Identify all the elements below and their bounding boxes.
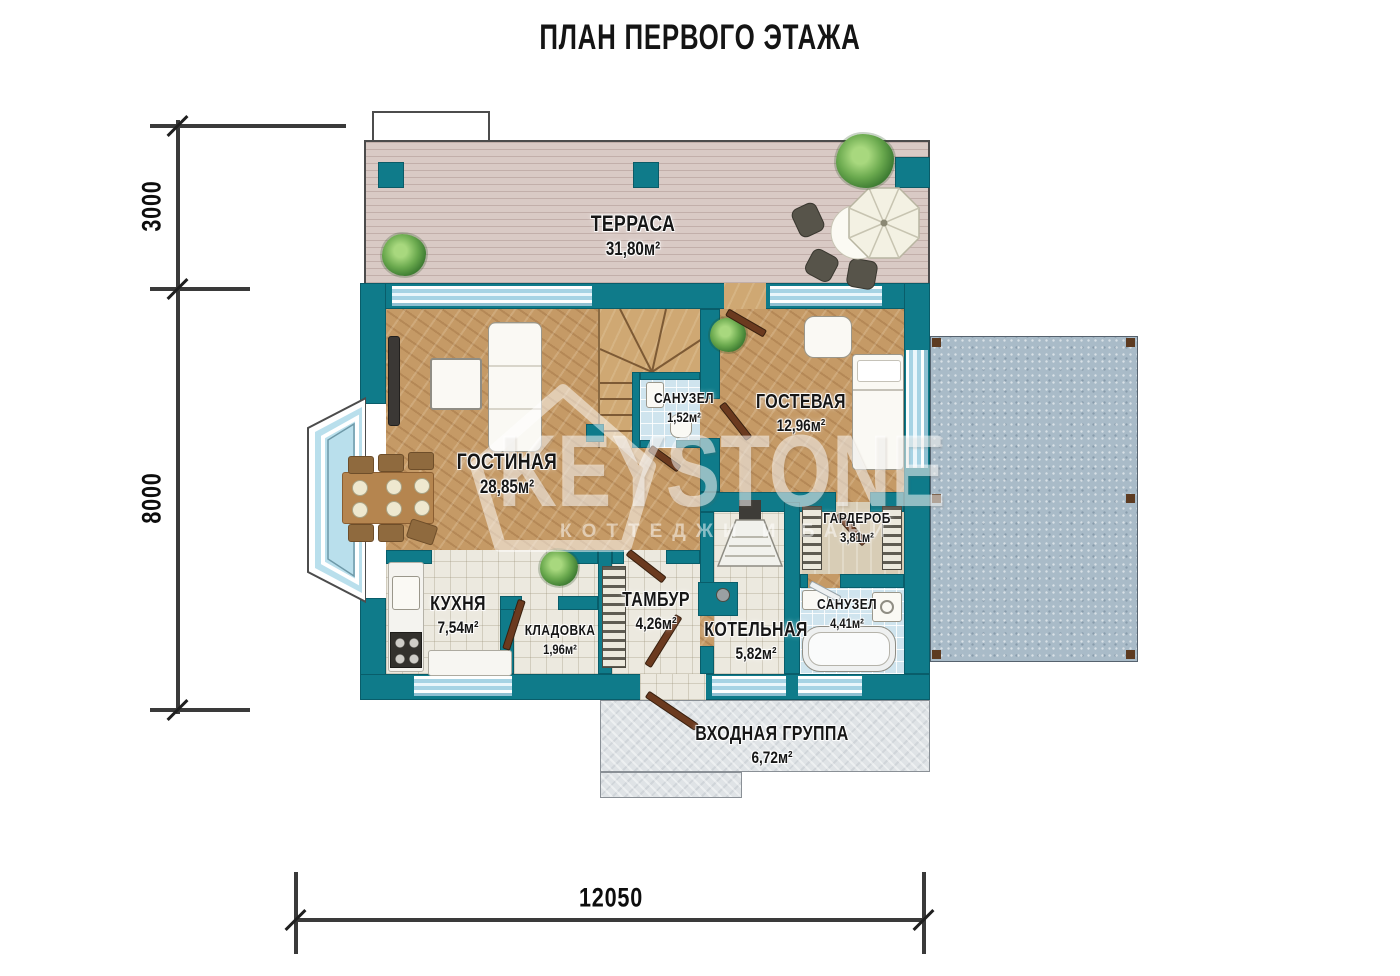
kitchen-island-icon (428, 650, 512, 676)
window (906, 350, 928, 468)
vent-duct-icon (716, 588, 730, 602)
chair-icon (348, 524, 374, 542)
pad-post (932, 494, 941, 503)
patio-table-umbrella-icon (780, 180, 930, 310)
stove-icon (390, 632, 422, 668)
chair-icon (378, 454, 404, 472)
dimension-extension-bottom (150, 708, 250, 712)
room-label-terrace: ТЕРРАСА 31,80м² (591, 210, 675, 261)
room-label-living-room: ГОСТИНАЯ 28,85м² (457, 448, 557, 499)
wall-interior (612, 550, 624, 564)
pillar (586, 424, 604, 442)
washer-drum (880, 600, 894, 614)
dimension-end-right (922, 872, 926, 954)
dimension-value-12050: 12050 (579, 883, 643, 914)
room-label-kitchen: КУХНЯ 7,54м² (430, 592, 486, 638)
dimension-line-horizontal (296, 918, 926, 922)
wall-interior (840, 574, 904, 588)
terrace-post (633, 162, 659, 188)
plate-icon (386, 479, 402, 495)
dimension-extension-mid (150, 287, 250, 291)
terrace-post (378, 162, 404, 188)
plant-icon (540, 550, 578, 586)
pad-post (1126, 650, 1135, 659)
dimension-end-left (294, 872, 298, 954)
plate-icon (386, 501, 402, 517)
chair-icon (348, 456, 374, 474)
wardrobe-shelves-icon (802, 506, 822, 570)
bathtub-icon (802, 626, 896, 672)
bed-icon (852, 354, 904, 470)
boiler-icon (712, 498, 788, 570)
dimension-value-8000: 8000 (137, 472, 168, 523)
wall-outer-left-upper (360, 283, 386, 404)
dimension-value-3000: 3000 (137, 180, 168, 231)
bathtub-inner (808, 632, 890, 666)
room-label-guest-room: ГОСТЕВАЯ 12,96м² (756, 390, 846, 436)
sofa-icon (488, 322, 542, 452)
plate-icon (352, 502, 368, 518)
window (798, 676, 862, 696)
pad-post (932, 338, 941, 347)
kitchen-sink-icon (392, 576, 420, 610)
pad-post (1126, 494, 1135, 503)
wall-bathroom-small (640, 372, 700, 380)
room-label-bathroom-small: САНУЗЕЛ 1,52м² (654, 390, 714, 426)
tv-icon (388, 336, 400, 426)
armchair-icon (804, 316, 852, 358)
room-label-wardrobe: ГАРДЕРОБ 3,81м² (823, 510, 891, 546)
window (392, 286, 592, 306)
wall-bathroom-small (676, 440, 700, 448)
floor-plan-canvas: ПЛАН ПЕРВОГО ЭТАЖА 3000 8000 12050 (0, 0, 1400, 976)
side-terrace-pad (930, 336, 1138, 662)
wall-bathroom-small (640, 440, 650, 448)
plant-icon (382, 234, 426, 276)
plate-icon (414, 500, 430, 516)
plate-icon (352, 480, 368, 496)
wall-interior (700, 438, 720, 492)
wall-interior (800, 574, 808, 588)
dimension-line-vertical (176, 120, 180, 714)
room-label-bathroom: САНУЗЕЛ 4,41м² (817, 596, 877, 632)
blanket-line (853, 389, 903, 391)
room-label-entrance-group: ВХОДНАЯ ГРУППА 6,72м² (695, 722, 849, 768)
pillow-icon (857, 360, 901, 382)
wall-interior (666, 550, 700, 564)
pad-post (1126, 338, 1135, 347)
wall-interior (558, 596, 598, 610)
wall-outer-right (904, 283, 930, 674)
plate-icon (414, 478, 430, 494)
window (712, 676, 786, 696)
terrace-door-opening (724, 283, 766, 309)
coffee-table-icon (430, 358, 482, 410)
window (414, 676, 512, 696)
wall-bathroom-small (632, 372, 640, 448)
pad-post (932, 650, 941, 659)
chair-icon (408, 452, 434, 470)
terrace-roof-edge (372, 111, 490, 142)
plant-icon (836, 134, 894, 188)
chair-icon (378, 524, 404, 542)
room-label-storage: КЛАДОВКА 1,96м² (525, 622, 596, 658)
page-title: ПЛАН ПЕРВОГО ЭТАЖА (539, 18, 860, 58)
room-label-boiler-room: КОТЕЛЬНАЯ 5,82м² (704, 618, 808, 664)
entrance-step (600, 772, 742, 798)
room-label-vestibule: ТАМБУР 4,26м² (622, 588, 690, 634)
